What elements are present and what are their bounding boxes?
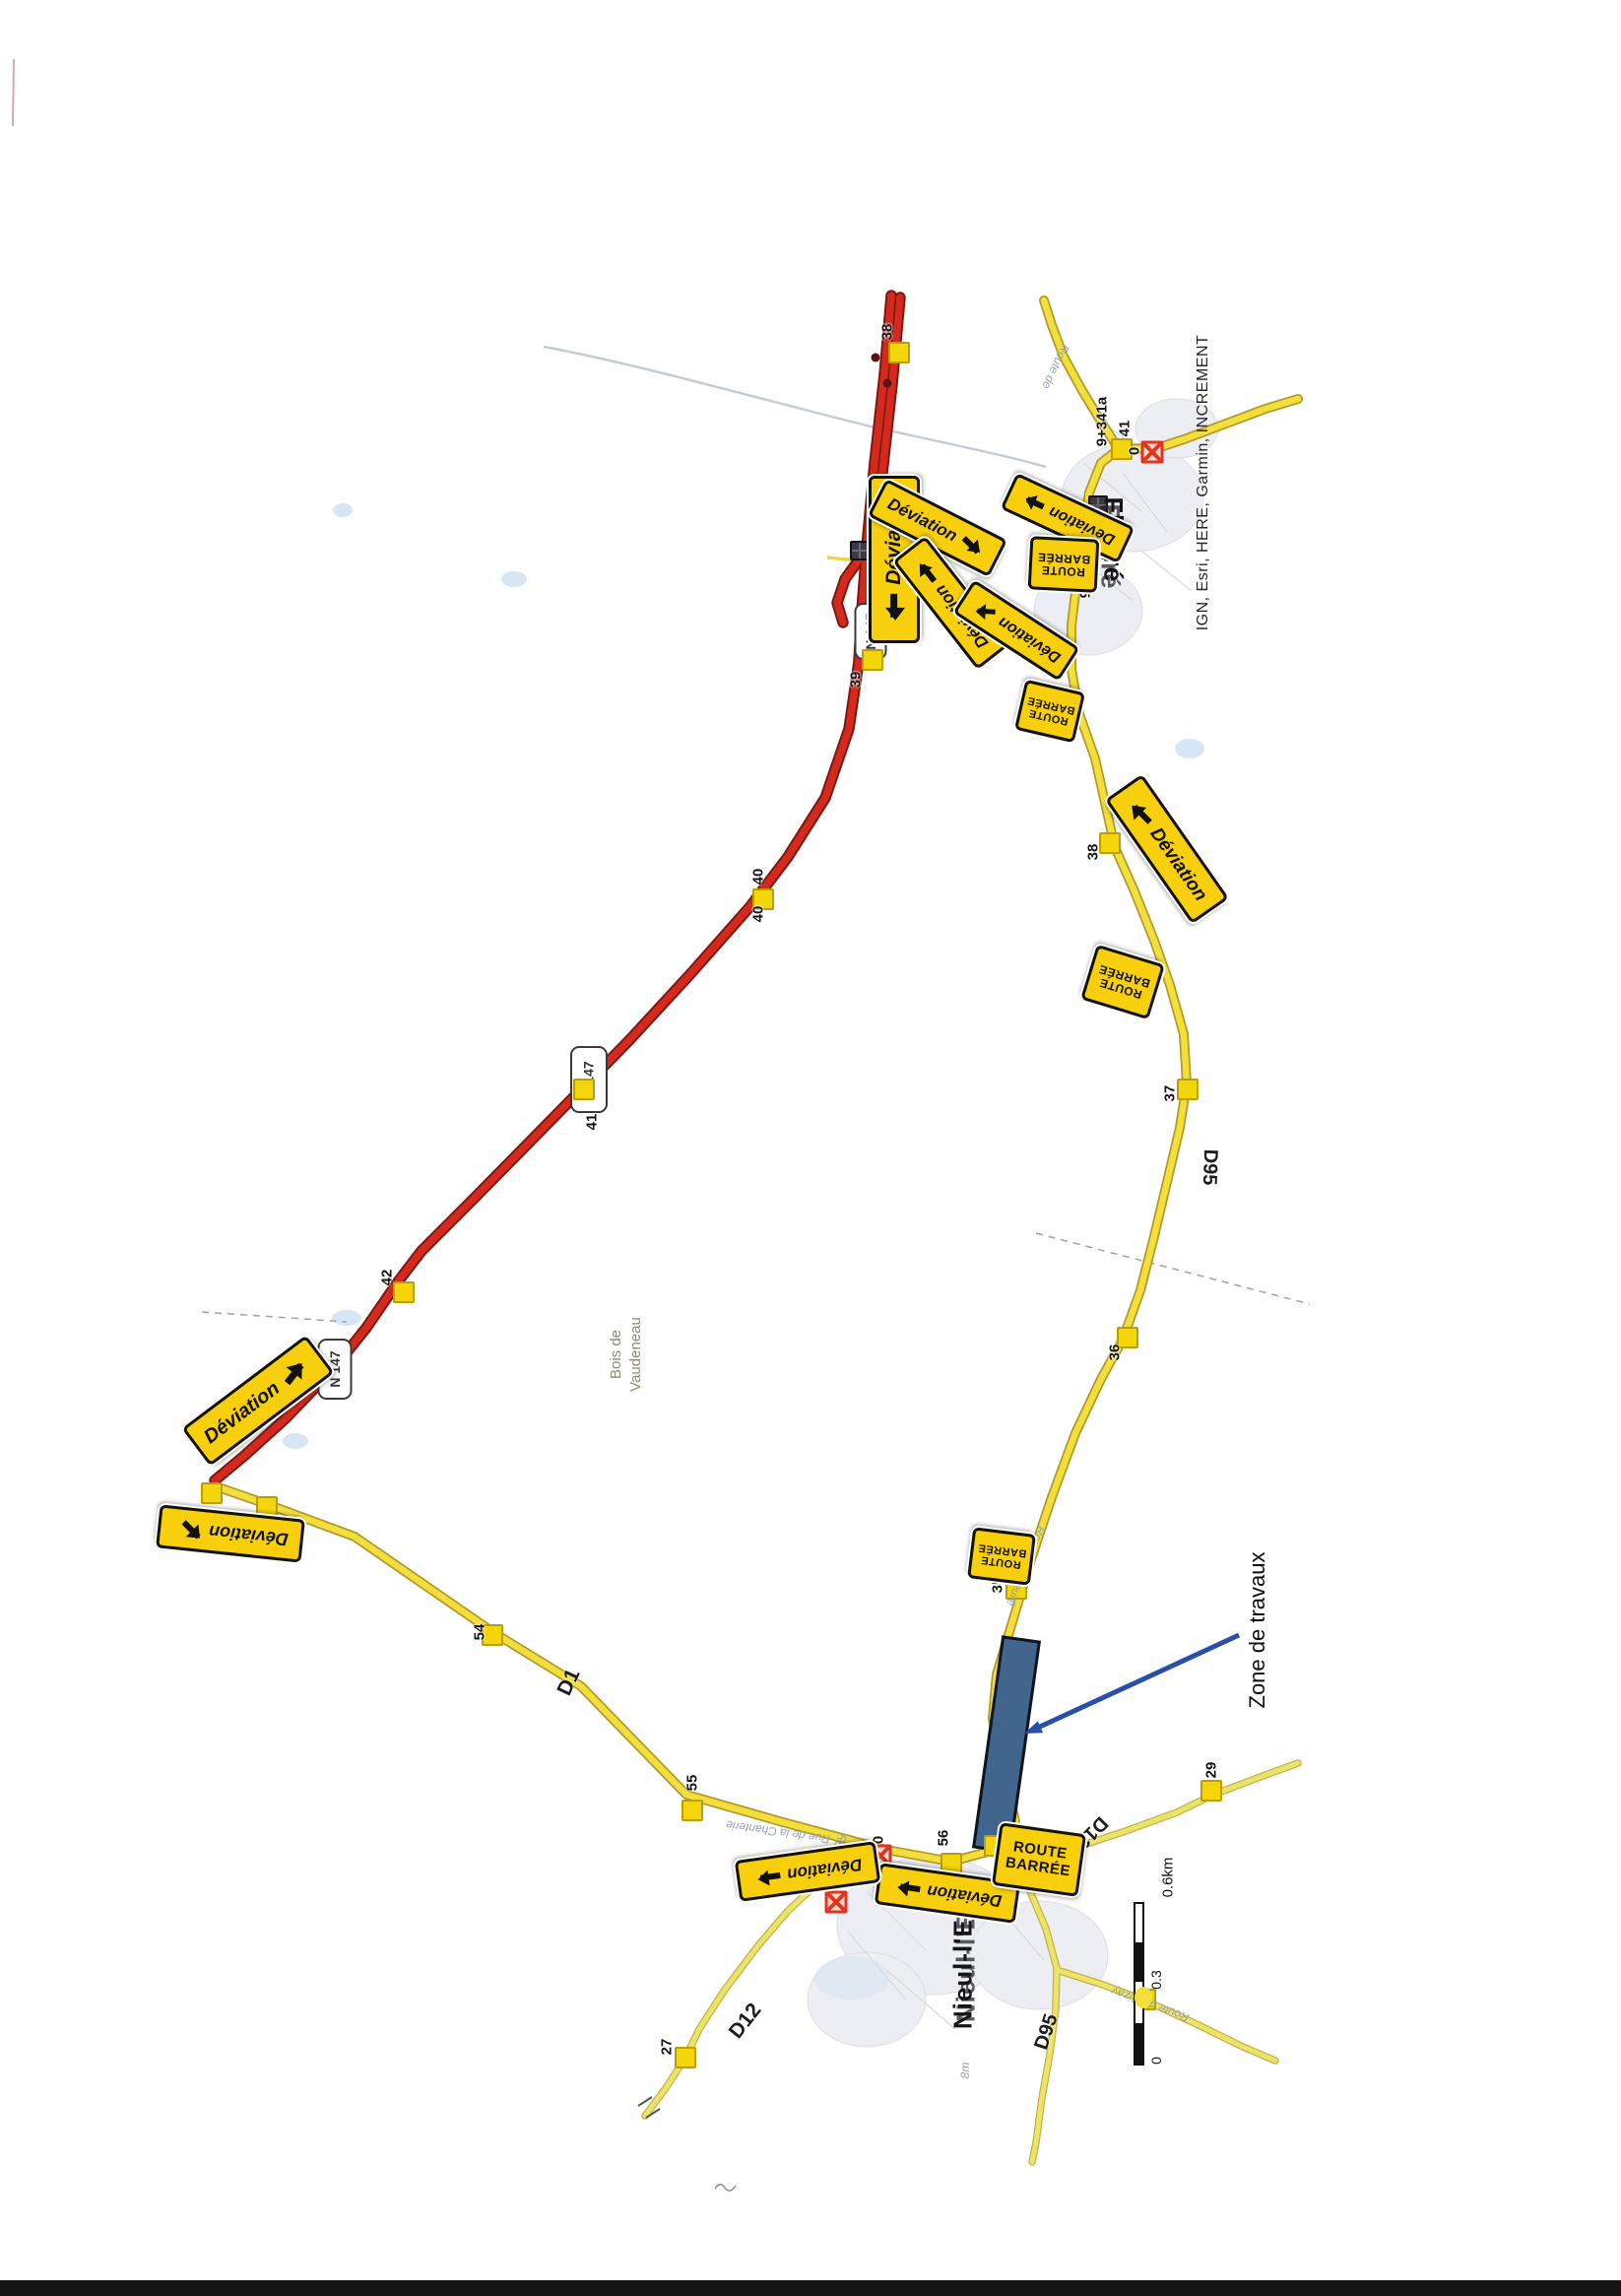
deviation-arrow-icon [1026, 496, 1045, 509]
deviation-arrow-icon [284, 1363, 303, 1385]
pr-55: 55 [684, 1775, 701, 1792]
pr-square-41 [573, 1079, 595, 1100]
deviation-arrow-icon [977, 608, 996, 614]
area-label-line: Bois de [607, 1317, 626, 1392]
route-barree-sign-nieul: ROUTEBARRÉE [992, 1822, 1086, 1897]
pr-41: 41 [584, 1114, 601, 1131]
closure-marker-fleure [1141, 441, 1164, 464]
pr-square-29 [1200, 1780, 1222, 1802]
route-barree-sign-route-fleure: ROUTEBARRÉE [967, 1527, 1036, 1585]
sign-text: Déviation [786, 1854, 864, 1883]
map-roads-layer [0, 0, 1621, 2296]
deviation-arrow-icon [962, 536, 980, 554]
scan-margin-mark [13, 59, 14, 126]
area-label-line: Vaudeneau [626, 1317, 646, 1392]
scale-label-06km: 0.6km [1160, 1858, 1177, 1898]
pr-square-38-n147 [888, 342, 910, 363]
pr-square-38-d95 [1099, 832, 1121, 854]
zone-de-travaux-label: Zone de travaux [1245, 1552, 1270, 1709]
forest-label-bois-de-vaudeneau: Bois deVaudeneau [607, 1317, 647, 1392]
closure-marker-nieul-w [825, 1891, 848, 1914]
pr-39: 39 [848, 672, 865, 689]
road-dot-b [883, 379, 892, 388]
deviation-arrow-icon [181, 1520, 200, 1539]
minor-roads [544, 347, 1046, 467]
scale-label-03: 0.3 [1148, 1970, 1164, 1989]
pr-42: 42 [379, 1270, 396, 1286]
deviation-arrow-icon [760, 1872, 780, 1880]
sign-text: Déviation [208, 1521, 290, 1549]
pr-36: 36 [1107, 1345, 1124, 1361]
pr-27: 27 [659, 2039, 676, 2056]
pr-square-37 [1177, 1079, 1199, 1100]
pr-41-fleure: 41 [1117, 421, 1134, 437]
deviation-map: N 147N 147N 1473839404041424354555635363… [0, 0, 1621, 2296]
sign-text-line: BARRÉE [1037, 550, 1090, 565]
deviation-arrow-icon [1133, 805, 1152, 824]
sign-text: Déviation [926, 1880, 1004, 1910]
map-attribution: IGN, Esri, HERE, Garmin, INCREMENT [1195, 335, 1212, 631]
pr-38-n147: 38 [879, 324, 896, 341]
pr-56: 56 [936, 1830, 952, 1847]
pr-square-39 [862, 649, 883, 671]
pr-29: 29 [1203, 1762, 1220, 1779]
pen-mark [715, 2185, 736, 2191]
dark-marker-interchange [850, 541, 870, 560]
pr-square-55 [681, 1800, 703, 1821]
road-label-d95-north: D95 [1198, 1148, 1221, 1185]
pr-54: 54 [472, 1624, 488, 1641]
scale-label-0: 0 [1148, 2057, 1164, 2065]
pr-38-d95: 38 [1085, 844, 1102, 861]
pr-37: 37 [1162, 1085, 1179, 1102]
scanned-map-page: N 147N 147N 1473839404041424354555635363… [0, 0, 1621, 2296]
pk-marker-9-341a: 9+341a [1094, 397, 1111, 446]
pr-0-fleure: 0 [1127, 447, 1143, 455]
deviation-arrow-icon [920, 563, 937, 582]
deviation-arrow-icon [890, 594, 897, 618]
deviation-arrow-icon [900, 1883, 920, 1891]
pr-40-a: 40 [750, 869, 767, 886]
pr-square-42 [393, 1281, 415, 1303]
pr-40-b: 40 [750, 906, 767, 923]
n147-road [215, 295, 906, 1480]
pr-square-43a [201, 1482, 223, 1504]
pr-square-27 [675, 2047, 696, 2068]
elevation-label-8m: 8m [958, 2063, 972, 2079]
route-barree-sign-fleure: ROUTEBARRÉE [1028, 536, 1100, 593]
road-dot-a [872, 354, 880, 362]
n147-casing [215, 295, 906, 1480]
